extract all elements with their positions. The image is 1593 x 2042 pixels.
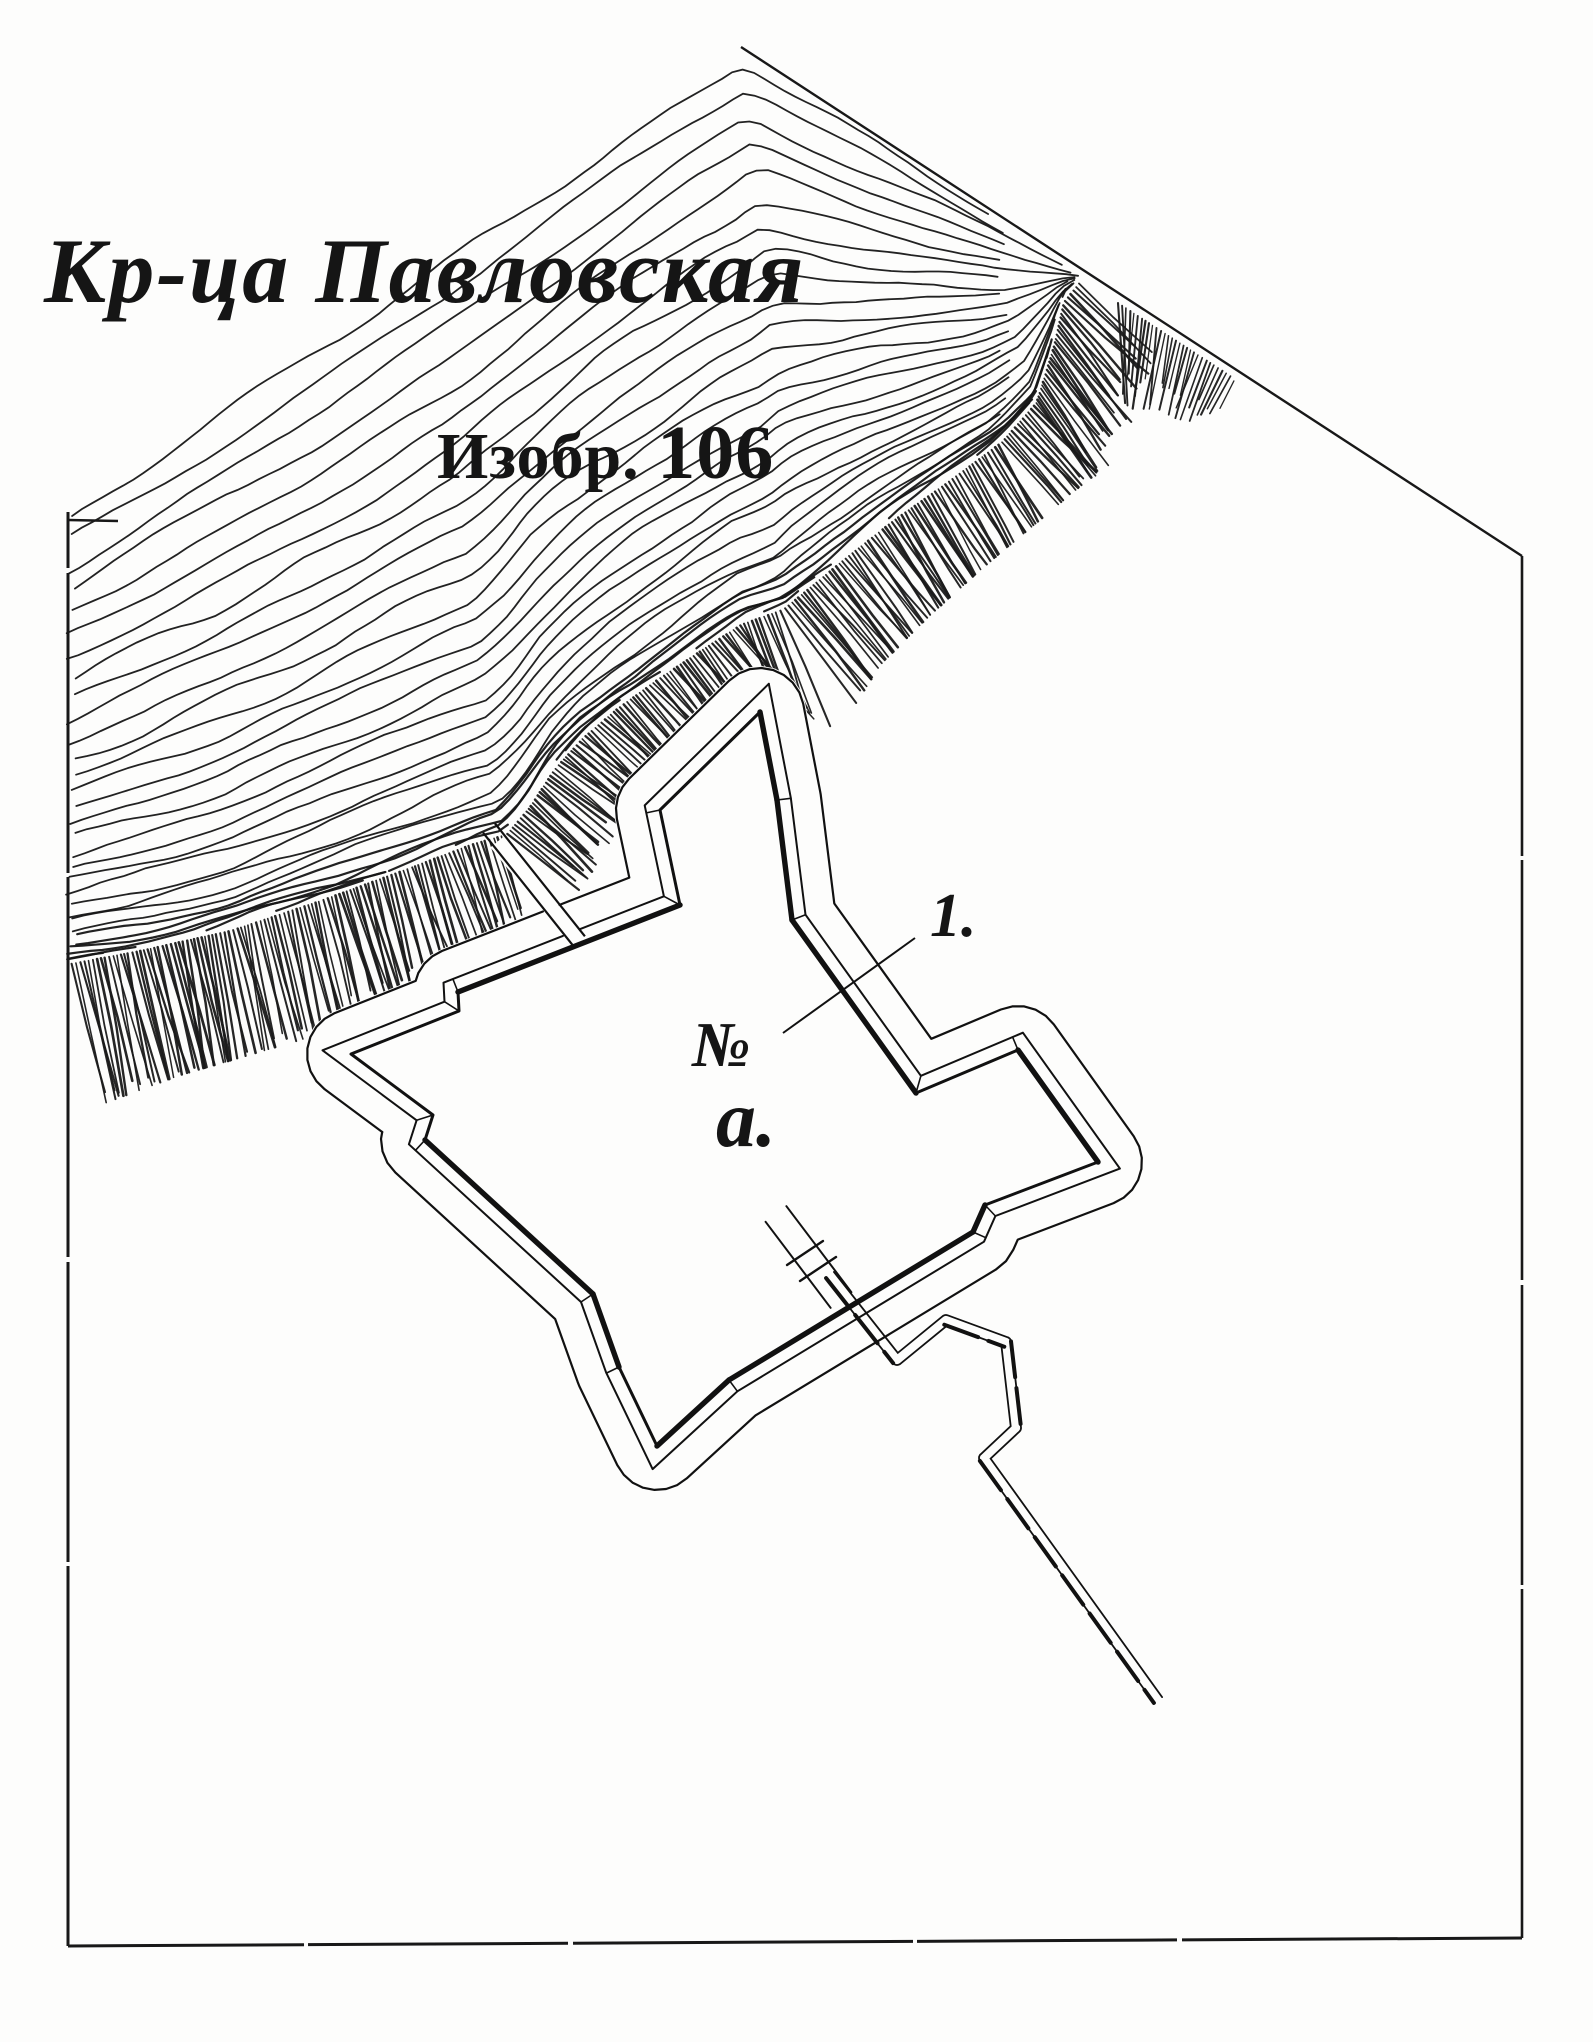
svg-text:а.: а. bbox=[716, 1076, 776, 1164]
svg-text:Изобр. 106: Изобр. 106 bbox=[437, 411, 774, 495]
svg-text:Кр-ца Павловская: Кр-ца Павловская bbox=[43, 220, 806, 322]
svg-text:1.: 1. bbox=[930, 882, 977, 950]
svg-text:№: № bbox=[691, 1009, 751, 1080]
